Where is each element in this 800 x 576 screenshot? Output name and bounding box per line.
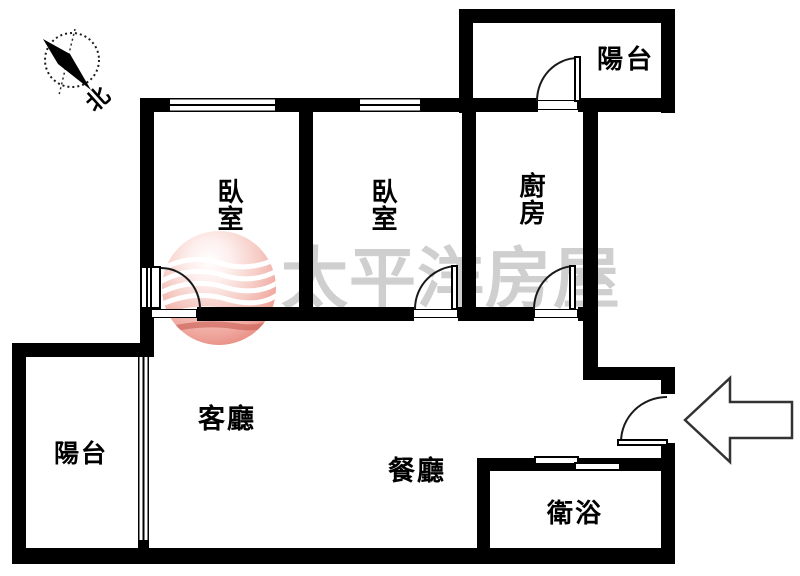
door-threshold: [537, 100, 578, 110]
wall: [12, 343, 26, 564]
window: [138, 357, 149, 540]
door-threshold: [413, 309, 458, 318]
room-label-bathroom: 衛浴: [547, 500, 603, 526]
room-label-bedroom-middle: 臥室: [370, 178, 396, 232]
entrance-arrow-icon: [682, 374, 796, 466]
room-label-balcony-top: 陽台: [597, 46, 655, 72]
wall: [197, 307, 414, 321]
sliding-door-panel: [534, 456, 579, 465]
wall: [12, 548, 675, 564]
wall: [138, 540, 149, 550]
room-label-dining-room: 餐廳: [388, 458, 446, 485]
room-label-bedroom-left: 臥室: [216, 178, 242, 232]
wall: [477, 458, 490, 564]
wall: [459, 9, 675, 23]
door-threshold: [151, 309, 197, 318]
window: [170, 98, 275, 112]
sliding-door-panel: [574, 462, 621, 471]
wall: [583, 98, 598, 380]
floor-plan: 太平洋房屋 北: [0, 0, 800, 576]
door-panel: [617, 439, 668, 446]
wall: [661, 367, 675, 394]
room-label-balcony-bottom-left: 陽台: [54, 442, 108, 467]
wall: [420, 98, 538, 112]
wall: [140, 98, 154, 268]
wall: [275, 98, 360, 112]
door-panel: [569, 265, 576, 310]
compass-north-label: 北: [80, 82, 114, 117]
compass-icon: 北: [28, 18, 120, 118]
room-label-kitchen: 廚房: [518, 172, 544, 226]
wall: [458, 307, 534, 321]
room-label-living-room: 客廳: [198, 406, 256, 433]
wall: [462, 98, 476, 321]
window: [360, 98, 420, 112]
wall: [12, 343, 150, 357]
wall: [299, 98, 313, 321]
compass-needle: [43, 39, 91, 90]
door-panel: [150, 266, 161, 309]
watermark: 太平洋房屋: [0, 0, 800, 576]
door-panel: [574, 56, 581, 102]
door-panel: [451, 265, 458, 310]
door-threshold: [534, 309, 578, 318]
wall: [578, 307, 598, 321]
